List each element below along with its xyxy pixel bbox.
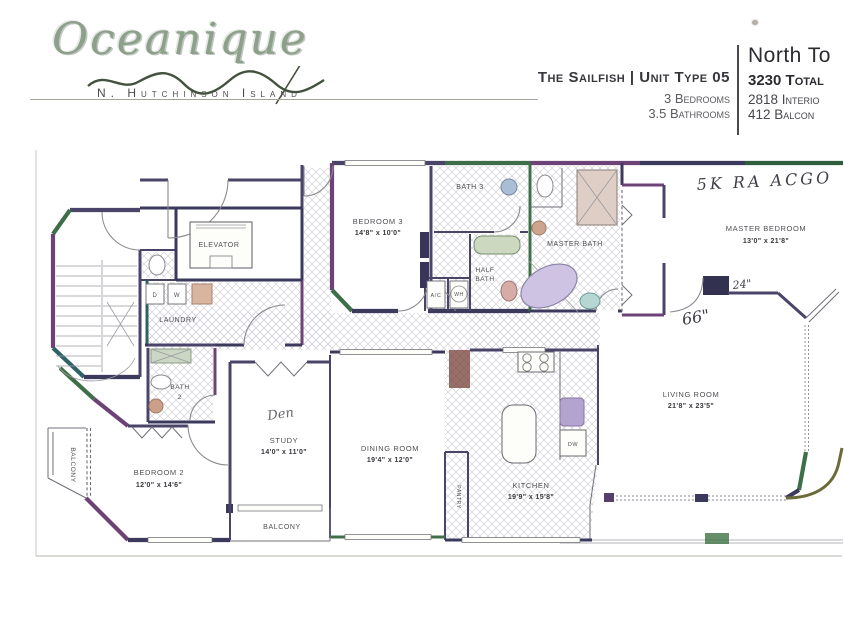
closet-wall-block (703, 276, 729, 295)
label-bath3: BATH 3 (456, 184, 484, 191)
label-balcony-bottom: BALCONY (263, 524, 301, 531)
dims-kitchen: 19'9" x 15'8" (508, 494, 554, 501)
label-living: LIVING ROOM (663, 390, 720, 399)
label-masterbedroom: MASTER BEDROOM (726, 224, 807, 233)
label-laundry: LAUNDRY (159, 317, 197, 324)
kitchen-island (502, 405, 536, 463)
handwriting-note: 5K RA ACGO (696, 168, 832, 194)
label-kitchen: KITCHEN (512, 481, 549, 490)
label-elevator: ELEVATOR (199, 242, 240, 249)
label-masterbath: MASTER BATH (547, 241, 603, 248)
masterbath-toilet (537, 175, 553, 197)
label-halfbath-2: BATH (475, 276, 494, 283)
dims-bedroom2: 12'0" x 14'6" (136, 482, 182, 489)
label-wh: WH (454, 292, 464, 298)
label-washer: W (174, 293, 180, 299)
toilet (149, 255, 165, 275)
halfbath-toilet (501, 281, 517, 301)
floorplan-drawing: ELEVATOR LAUNDRY D W BATH 3 BEDROOM 3 14… (0, 0, 845, 628)
masterbath-sink1 (532, 221, 546, 235)
label-bath2-1: BATH (170, 384, 189, 391)
label-halfbath-1: HALF (475, 267, 494, 274)
label-study: STUDY (270, 436, 298, 445)
handwriting-study-scribble: Den (265, 405, 294, 424)
kitchen-sink (560, 398, 584, 426)
label-bedroom3: BEDROOM 3 (353, 217, 403, 226)
dims-study: 14'0" x 11'0" (261, 449, 307, 456)
label-ac: A/C (431, 293, 442, 299)
label-dining: DINING ROOM (361, 444, 419, 453)
label-bath2-2: 2 (178, 394, 182, 401)
dims-dining: 19'4" x 12'0" (367, 457, 413, 464)
label-pantry: PANTRY (455, 485, 461, 508)
laundry-tub (192, 284, 212, 304)
dims-living: 21'8" x 23'5" (668, 403, 714, 410)
tall-cabinet (449, 350, 470, 388)
dims-masterbedroom: 13'0" x 21'8" (743, 238, 789, 245)
halfbath-tub (474, 236, 520, 254)
handwriting-wall-length: 66" (680, 305, 711, 329)
label-dryer: D (153, 293, 158, 299)
masterbath-sink2 (580, 293, 600, 309)
bath2-sink (149, 399, 163, 413)
handwriting-closet-width: 24" (731, 277, 752, 292)
label-balcony-left: BALCONY (69, 447, 76, 482)
bath2-toilet (151, 375, 171, 389)
dims-bedroom3: 14'8" x 10'0" (355, 230, 401, 237)
label-dishwasher: DW (568, 442, 579, 448)
label-bedroom2: BEDROOM 2 (134, 468, 184, 477)
bath3-sink (501, 179, 517, 195)
scanned-floorplan-page: { "logo": { "name": "Oceanique", "subtit… (0, 0, 845, 628)
